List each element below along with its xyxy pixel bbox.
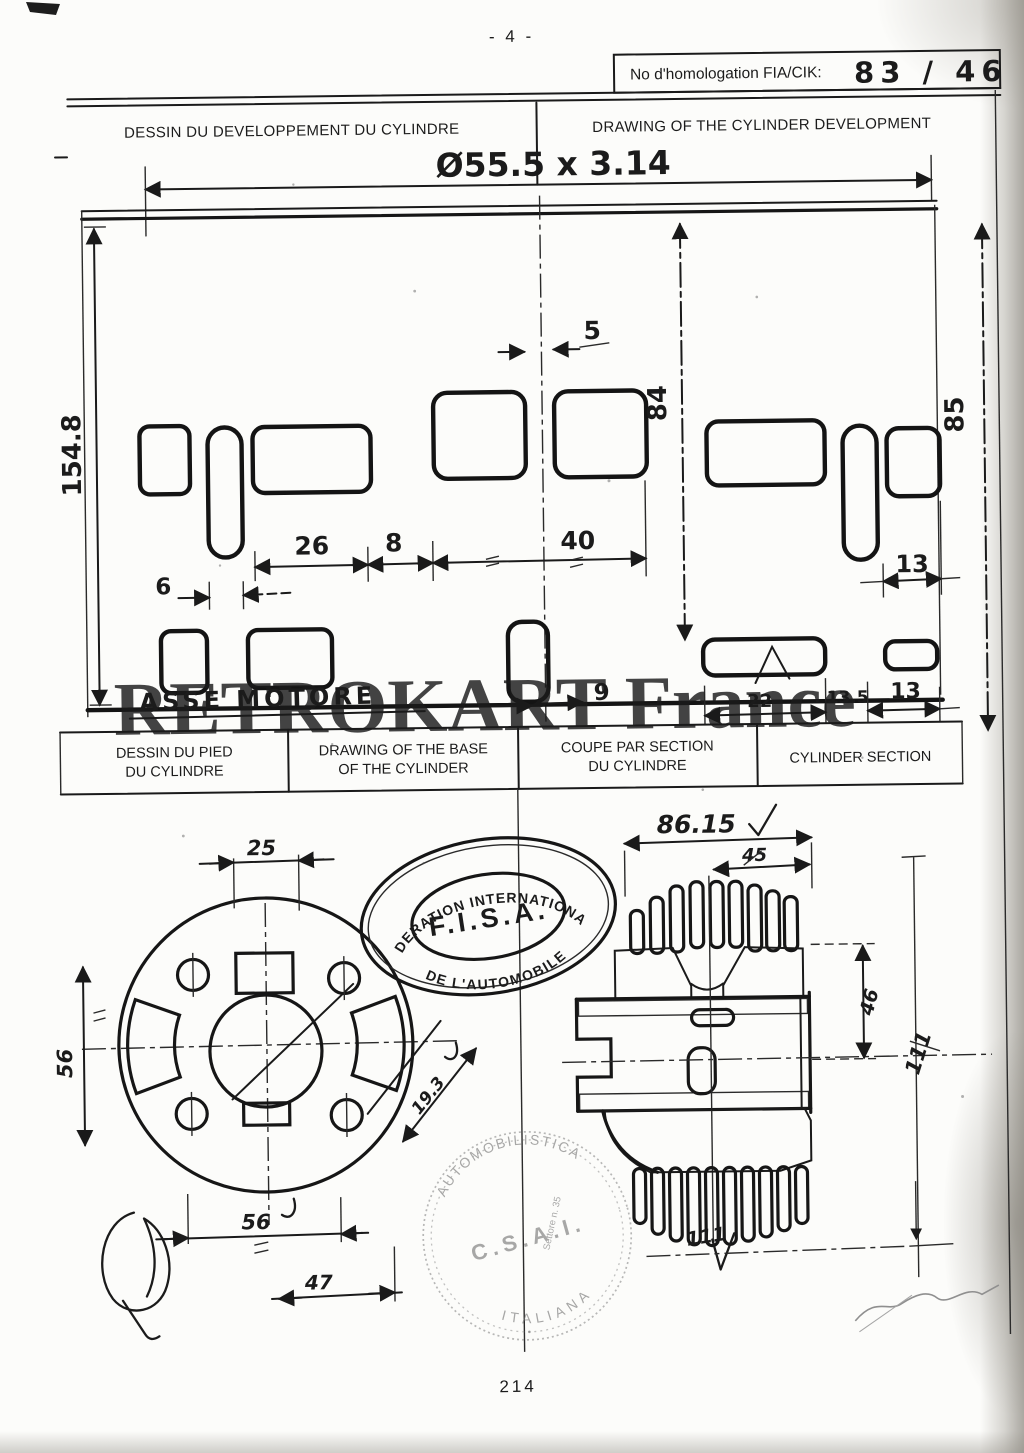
signature-stroke: [859, 1295, 912, 1332]
key-boss: [236, 953, 293, 994]
scan-corner-artifact: [26, 2, 60, 15]
svg-text:56: 56: [53, 1049, 77, 1079]
svg-text:111: 111: [900, 1028, 936, 1077]
diameter-dimension: Ø55.5 x 3.14: [145, 140, 932, 237]
wedge-cutout: [127, 999, 180, 1094]
svg-text:26: 26: [294, 531, 329, 560]
dim-26-8-40: 26 8 40: [254, 480, 646, 583]
svg-text:46: 46: [855, 987, 883, 1019]
svg-text:56: 56: [241, 1210, 271, 1234]
port-shape: [207, 427, 243, 557]
centerline: [540, 196, 546, 722]
svg-text:19.3: 19.3: [408, 1073, 450, 1118]
dim-46: 46: [811, 943, 885, 1059]
table-header-cell: DU CYLINDRE: [125, 764, 224, 781]
svg-text:25: 25: [247, 836, 277, 860]
dim-diameter: Ø55.5 x 3.14: [435, 143, 671, 185]
check-mark: [445, 1043, 457, 1059]
cooling-fins-top: [630, 881, 798, 954]
dim-45: 45: [713, 844, 809, 869]
homologation-box: No d'homologation FIA/CIK: 83 / 46: [614, 50, 1008, 93]
title-development-en: DRAWING OF THE CYLINDER DEVELOPMENT: [592, 115, 931, 136]
svg-text:5: 5: [583, 316, 601, 345]
table-header-cell: DESSIN DU PIED: [116, 744, 233, 761]
dim-25: 25: [199, 835, 334, 912]
dim-5: 5: [498, 316, 609, 352]
dim-56-left: 56: [52, 967, 107, 1146]
dim-56-bottom: 56: [156, 1192, 369, 1255]
dim-111-bottom: 111: [646, 1181, 954, 1271]
page-number-bottom: 214: [499, 1377, 537, 1396]
table-header-cell: OF THE CYLINDER: [338, 761, 468, 779]
title-development-fr: DESSIN DU DEVELOPPEMENT DU CYLINDRE: [124, 121, 459, 142]
svg-text:111: 111: [685, 1223, 728, 1251]
port-shape: [252, 426, 371, 493]
dim-111-right: 111: [898, 856, 943, 1277]
homologation-number: 83 / 46: [854, 54, 1008, 90]
hatched-flange: [723, 946, 804, 997]
port-shape: [886, 428, 940, 497]
homologation-label: No d'homologation FIA/CIK:: [630, 64, 822, 83]
table-header-cell: COUPE PAR SECTION: [561, 739, 714, 757]
table-header-cell: DU CYLINDRE: [588, 758, 687, 775]
pen-scribble: [102, 1212, 171, 1339]
csai-stamp-ring-top: AUTOMOBILISTICA: [423, 1114, 587, 1202]
port-shape: [885, 641, 937, 670]
svg-text:8: 8: [385, 528, 403, 557]
svg-text:13: 13: [890, 679, 921, 704]
hatched-flange: [615, 948, 692, 999]
table-header-cell: DRAWING OF THE BASE: [319, 741, 489, 759]
svg-text:85: 85: [940, 396, 970, 433]
table-header-cell: CYLINDER SECTION: [789, 749, 931, 767]
port-shape: [433, 392, 526, 479]
port-shape: [554, 390, 647, 477]
svg-text:6: 6: [155, 574, 171, 600]
page-number-top: - 4 -: [489, 27, 534, 47]
check-mark: [749, 805, 776, 835]
check-mark: [282, 1199, 295, 1217]
svg-text:ITALIANA: ITALIANA: [496, 1282, 599, 1336]
svg-text:86.15: 86.15: [657, 809, 736, 839]
svg-text:40: 40: [560, 526, 595, 555]
svg-text:45: 45: [741, 845, 767, 866]
svg-text:AUTOMOBILISTICA: AUTOMOBILISTICA: [423, 1114, 587, 1202]
port-slot: [691, 1009, 733, 1026]
dim-19-3: 19.3: [367, 1020, 477, 1141]
watermark: RETROKART France: [113, 659, 856, 752]
svg-text:47: 47: [304, 1270, 333, 1294]
dim-6: 6: [155, 573, 290, 611]
svg-text:13: 13: [895, 550, 929, 578]
scanned-homologation-page: - 4 - No d'homologation FIA/CIK: 83 / 46…: [0, 0, 1024, 1453]
port-shape: [139, 426, 190, 495]
dim-47: 47: [271, 1246, 402, 1303]
svg-text:84: 84: [643, 385, 673, 422]
csai-stamp-ring-bottom: ITALIANA: [496, 1282, 599, 1336]
port-shape: [706, 420, 825, 485]
svg-text:154.8: 154.8: [57, 414, 88, 497]
port-shape: [842, 426, 878, 560]
csai-stamp-center-text: C.S.A.I.: [468, 1210, 587, 1266]
cylinder-section-drawing: 86.15 45: [559, 802, 995, 1281]
dim-85: 85: [938, 224, 988, 730]
document-scan: - 4 - No d'homologation FIA/CIK: 83 / 46…: [0, 0, 1024, 1453]
signature: [855, 1285, 999, 1321]
